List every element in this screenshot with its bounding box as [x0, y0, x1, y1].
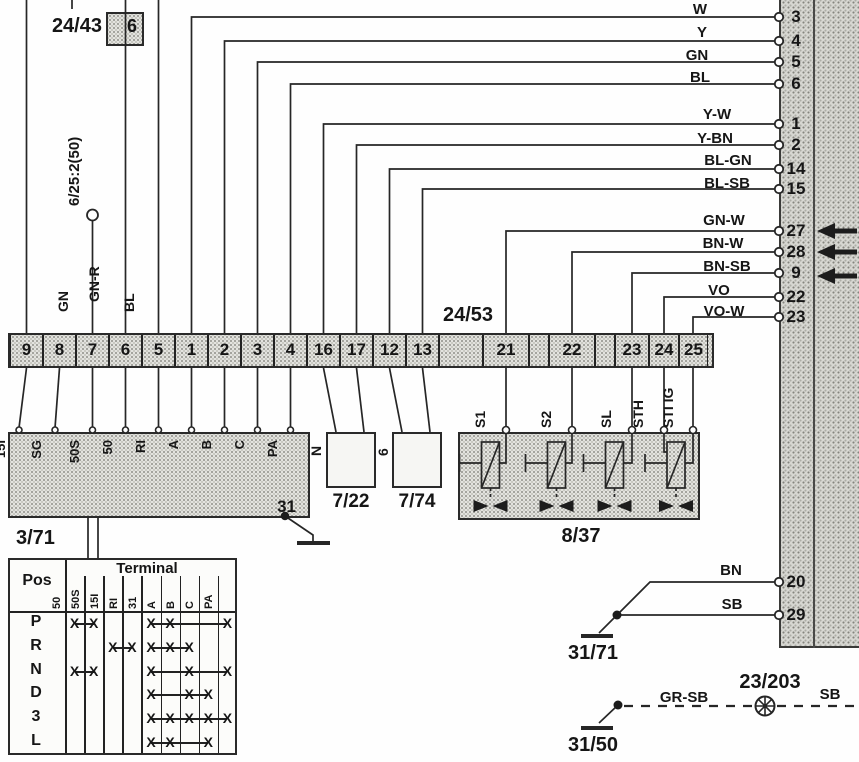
strip-cell: 13: [406, 335, 439, 366]
table-column-label: C: [181, 575, 199, 609]
strip-24-53-label: 24/53: [432, 304, 504, 327]
wire-label-vertical: BL: [120, 276, 138, 312]
wire-color-label: BN-W: [693, 235, 753, 252]
splice-23-203-label: 23/203: [729, 671, 811, 694]
wire-color-label: BN-SB: [697, 258, 757, 275]
wire-label-gr-sb: GR-SB: [652, 689, 716, 706]
table-contact-mark: X: [87, 615, 100, 632]
wire-color-label: GN: [672, 47, 722, 64]
strip-cell: 12: [373, 335, 406, 366]
table-line: [218, 576, 220, 753]
table-contact-mark: X: [145, 734, 158, 751]
table-contact-mark: X: [125, 639, 138, 656]
connector-24-43-label: 24/43: [28, 15, 102, 38]
pin-label: 50: [99, 440, 117, 492]
table-contact-mark: X: [221, 615, 234, 632]
terminal-number: 27: [781, 221, 811, 241]
inline-connector-icon: [87, 210, 98, 221]
pin-label: PA: [264, 440, 282, 492]
strip-cell: [529, 335, 549, 366]
junction-dot: [614, 701, 623, 710]
table-contact-mark: X: [145, 639, 158, 656]
component-8-37-box: [458, 432, 700, 520]
wiring-diagram: 987651234161712132122232425 24/43 6 6/25…: [0, 0, 859, 762]
table-column-label: B: [162, 575, 180, 609]
pin-31-label: 31: [264, 497, 296, 517]
pin-label: RI: [132, 440, 150, 492]
table-contact-mark: X: [164, 734, 177, 751]
table-contact-line: [151, 694, 208, 696]
wire-color-label: BN: [705, 562, 757, 579]
ground-symbols: [297, 543, 613, 728]
table-row-pos: P: [12, 613, 60, 631]
wire-color-label: W: [675, 1, 725, 18]
solenoid-label: S2: [537, 366, 555, 428]
inline-connector-6-25-label: 6/25:2(50): [66, 88, 84, 206]
table-contact-line: [151, 623, 227, 625]
terminal-number: 1: [781, 114, 811, 134]
terminal-number: 3: [781, 7, 811, 27]
strip-cell: 22: [549, 335, 595, 366]
wire-color-label: BL-GN: [698, 152, 758, 169]
strip-cell: [439, 335, 483, 366]
wire-color-label: BL: [675, 69, 725, 86]
splice-icon: [756, 697, 775, 716]
table-contact-mark: X: [145, 615, 158, 632]
wire-color-label: Y-BN: [690, 130, 740, 147]
table-contact-mark: X: [164, 639, 177, 656]
ground-31-71-label: 31/71: [558, 642, 628, 665]
terminal-number: 15: [781, 179, 811, 199]
component-7-22-box: [326, 432, 376, 488]
pin-label: C: [231, 440, 249, 492]
strip-cell: 3: [241, 335, 274, 366]
table-row-pos: D: [12, 684, 60, 702]
table-row-pos: N: [12, 661, 60, 679]
strip-cell: 24: [649, 335, 679, 366]
terminal-number: 22: [781, 287, 811, 307]
table-contact-mark: X: [183, 663, 196, 680]
table-column-label: PA: [200, 575, 218, 609]
table-contact-mark: X: [221, 710, 234, 727]
solenoid-label: SL: [597, 366, 615, 428]
table-contact-mark: X: [202, 686, 215, 703]
strip-cell: 2: [208, 335, 241, 366]
terminal-number: 14: [781, 159, 811, 179]
table-contact-mark: X: [183, 710, 196, 727]
wire-color-label: GN-W: [694, 212, 754, 229]
table-column-label: 15I: [86, 575, 104, 609]
junction-dot: [613, 611, 622, 620]
table-contact-mark: X: [145, 710, 158, 727]
component-7-74-glyph: 6: [374, 436, 392, 456]
strip-cell: 1: [175, 335, 208, 366]
strip-cell: 9: [10, 335, 43, 366]
table-column-label: 31: [124, 575, 142, 609]
wire-color-label: VO-W: [694, 303, 754, 320]
strip-cell: [595, 335, 615, 366]
table-row-pos: L: [12, 732, 60, 750]
component-8-37-label: 8/37: [549, 525, 613, 548]
strip-cell: 16: [307, 335, 340, 366]
table-contact-mark: X: [68, 615, 81, 632]
table-contact-mark: X: [202, 734, 215, 751]
wire-color-label: Y-W: [692, 106, 742, 123]
strip-cell: 21: [483, 335, 529, 366]
table-column-label: 50: [48, 575, 66, 609]
wire-label-vertical: GN-R: [85, 244, 103, 302]
strip-cell: 25: [679, 335, 708, 366]
solenoid-label: STH: [629, 366, 647, 428]
wire-color-label: VO: [694, 282, 744, 299]
table-contact-mark: X: [106, 639, 119, 656]
pin-label: SG: [28, 440, 46, 492]
table-contact-mark: X: [221, 663, 234, 680]
terminal-number: 20: [781, 572, 811, 592]
strip-cell: 7: [76, 335, 109, 366]
strip-cell: 4: [274, 335, 307, 366]
component-7-74-label: 7/74: [387, 491, 447, 513]
strip-cell: 8: [43, 335, 76, 366]
terminal-number: 23: [781, 307, 811, 327]
solenoid-label: STI IG: [659, 366, 677, 428]
table-contact-mark: X: [87, 663, 100, 680]
pin-label: A: [165, 440, 183, 492]
wire-color-label: Y: [677, 24, 727, 41]
component-7-22-glyph: N: [307, 436, 325, 456]
table-row-pos: R: [12, 637, 60, 655]
terminal-number: 28: [781, 242, 811, 262]
wire-label-sb-right: SB: [810, 686, 850, 703]
terminal-number: 5: [781, 52, 811, 72]
strip-cell: 17: [340, 335, 373, 366]
table-row-pos: 3: [12, 708, 60, 726]
table-contact-mark: X: [164, 615, 177, 632]
pin-label: 15I: [0, 440, 10, 492]
table-column-label: A: [143, 575, 161, 609]
table-column-label: RI: [105, 575, 123, 609]
strip-cell: 23: [615, 335, 649, 366]
table-contact-mark: X: [145, 686, 158, 703]
strip-cell: 6: [109, 335, 142, 366]
terminal-number: 29: [781, 605, 811, 625]
component-7-22-label: 7/22: [321, 491, 381, 513]
wire-color-label: BL-SB: [697, 175, 757, 192]
strip-cell: 5: [142, 335, 175, 366]
wire-label-vertical: GN: [54, 270, 72, 312]
pin-label: B: [198, 440, 216, 492]
table-contact-mark: X: [164, 710, 177, 727]
table-contact-mark: X: [145, 663, 158, 680]
table-column-label: 50S: [67, 575, 85, 609]
solenoid-label: S1: [471, 366, 489, 428]
connector-band-inner-line: [813, 0, 815, 648]
table-contact-mark: X: [183, 639, 196, 656]
wire-label-vertical: BL-GR: [0, 184, 3, 252]
terminal-number: 9: [781, 263, 811, 283]
component-3-71-label: 3/71: [16, 527, 76, 550]
pin-label: 50S: [66, 440, 84, 492]
table-contact-mark: X: [183, 686, 196, 703]
component-7-74-box: [392, 432, 442, 488]
terminal-number: 4: [781, 31, 811, 51]
wire-color-label: SB: [706, 596, 758, 613]
terminal-number: 2: [781, 135, 811, 155]
ground-31-50-label: 31/50: [558, 734, 628, 757]
connector-strip-24-53: 987651234161712132122232425: [8, 333, 714, 368]
table-contact-mark: X: [68, 663, 81, 680]
table-contact-line: [151, 742, 208, 744]
table-contact-mark: X: [202, 710, 215, 727]
connector-24-43-pin: 6: [121, 16, 143, 37]
terminal-number: 6: [781, 74, 811, 94]
